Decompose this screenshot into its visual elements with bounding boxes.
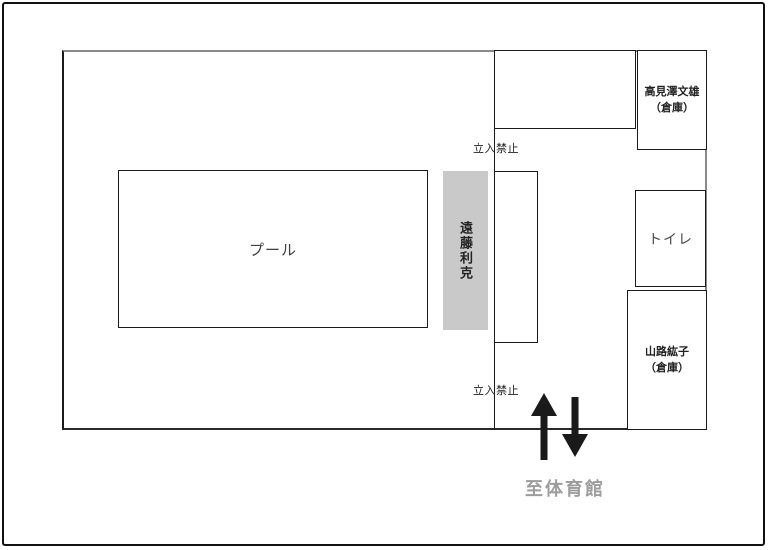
pool-site-map: { "map": { "pool": { "label": "プール" }, "…: [0, 0, 769, 550]
storage-takamizawa-name: 高見澤文雄: [645, 84, 700, 100]
up-arrow-icon: [531, 393, 557, 460]
no-entry-label-top: 立入禁止: [461, 140, 531, 156]
toilet-label: トイレ: [648, 229, 693, 249]
toilet-room: トイレ: [635, 190, 706, 287]
storage-yamaji-name: 山路紘子: [645, 344, 689, 360]
entrance-arrows: [520, 390, 600, 466]
storage-takamizawa: 高見澤文雄 （倉庫）: [637, 50, 707, 150]
storage-takamizawa-type: （倉庫）: [650, 100, 694, 116]
unlabeled-building: [494, 50, 636, 129]
storage-yamaji-type: （倉庫）: [645, 360, 689, 376]
storage-yamaji: 山路紘子 （倉庫）: [627, 290, 707, 430]
unlabeled-corridor-building: [494, 171, 538, 343]
installation-label: 遠藤利克: [459, 221, 472, 281]
pool-area: プール: [118, 170, 428, 328]
down-arrow-icon: [562, 397, 588, 457]
pool-label: プール: [249, 239, 297, 260]
installation-area: 遠藤利克: [443, 171, 488, 330]
to-gymnasium-label: 至体育館: [495, 475, 635, 501]
